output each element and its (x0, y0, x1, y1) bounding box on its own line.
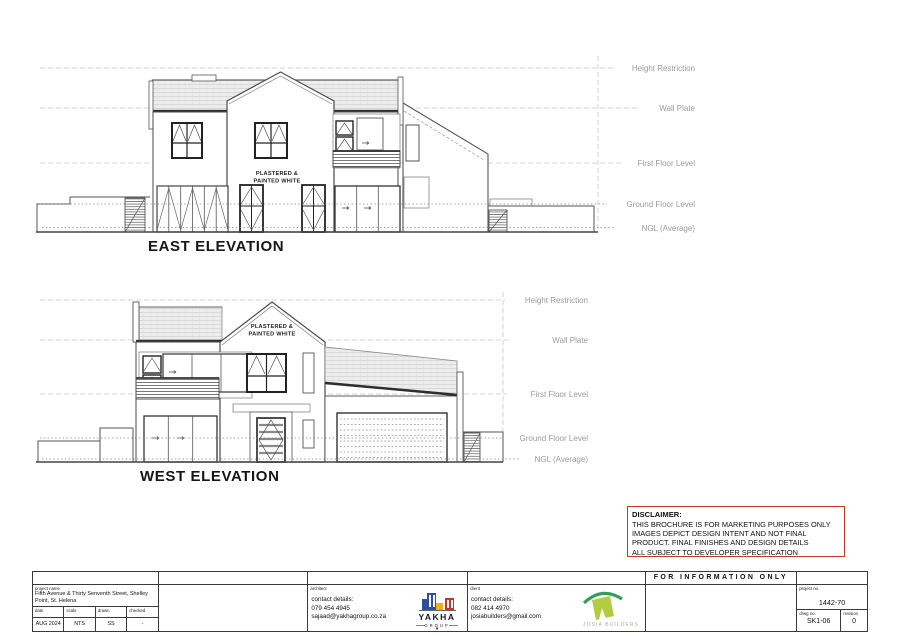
disclaimer-line: THIS BROCHURE IS FOR MARKETING PURPOSES … (632, 520, 840, 529)
level-label: Ground Floor Level (627, 200, 696, 209)
east-side-return (404, 177, 429, 208)
east-wall-note-line1: PLASTERED & (256, 171, 298, 177)
roof-vent (192, 75, 216, 81)
top-cell (797, 572, 867, 584)
drwg-no-value: SK1-06 (797, 616, 840, 625)
checked-label: checked (127, 607, 157, 618)
information-stamp-cell: FOR INFORMATION ONLY (646, 572, 798, 584)
empty-cell (646, 585, 798, 631)
project-no-label: project no. (797, 585, 867, 591)
top-cell (159, 572, 309, 584)
level-label: NGL (Average) (642, 224, 696, 233)
revision-cell: revision 0 (841, 610, 867, 631)
project-name: Fifth Avenue & Thirty Senventh Street, S… (33, 591, 158, 604)
west-narrow-window-lower (303, 420, 314, 448)
east-folding-doors (157, 186, 228, 232)
east-balcony (333, 114, 400, 168)
parapet-left (133, 302, 139, 342)
top-cell (308, 572, 468, 584)
revision-value: 0 (841, 616, 867, 625)
parapet-left (149, 81, 153, 129)
east-elevation-title: EAST ELEVATION (148, 238, 284, 255)
level-label: NGL (Average) (535, 455, 589, 464)
top-cell (33, 572, 159, 584)
east-french-door-right (302, 185, 325, 232)
east-narrow-window (406, 125, 419, 161)
date-column: date AUG 2024 (33, 607, 64, 631)
disclaimer-line: PRODUCT. FINAL FINISHES AND DESIGN DETAI… (632, 538, 840, 547)
date-value: AUG 2024 (33, 618, 63, 631)
level-label: First Floor Level (531, 390, 589, 399)
date-label: date (33, 607, 63, 618)
logo-building-yellow (436, 603, 443, 610)
level-label: Wall Plate (659, 104, 695, 113)
scale-value: NTS (64, 618, 94, 631)
top-cell (468, 572, 646, 584)
west-roof-left (133, 302, 222, 342)
garage-door (337, 413, 447, 462)
disclaimer-title: DISCLAIMER: (632, 510, 840, 520)
parapet-right (457, 372, 463, 462)
disclaimer-line: ALL SUBJECT TO DEVELOPER SPECIFICATION (632, 548, 840, 557)
checked-value: - (127, 618, 157, 631)
balcony-railing (136, 378, 219, 399)
drwg-no-cell: drwg no. SK1-06 (797, 610, 841, 631)
drawing-info-table: date AUG 2024 scale NTS drawn SS checked… (33, 606, 158, 631)
drawing-sheet: PLASTERED & PAINTED WHITE Height Restric… (0, 0, 900, 636)
east-elevation-drawing: PLASTERED & PAINTED WHITE Height Restric… (0, 0, 900, 270)
title-block: FOR INFORMATION ONLY project name Fifth … (32, 571, 868, 632)
west-window-gable (247, 354, 286, 392)
scale-column: scale NTS (64, 607, 95, 631)
west-left-boundary-wall (38, 428, 133, 462)
west-sliding-door (144, 416, 217, 462)
disclaimer-box: DISCLAIMER: THIS BROCHURE IS FOR MARKETI… (627, 506, 845, 557)
east-window-gable (255, 123, 287, 158)
west-narrow-window-upper (303, 353, 314, 393)
yakha-logo-subtext: GROUP (424, 623, 449, 628)
east-french-door-left (240, 185, 263, 232)
west-garage (325, 347, 463, 462)
west-elevation-title: WEST ELEVATION (140, 468, 280, 485)
title-block-main-row: project name Fifth Avenue & Thirty Senve… (33, 585, 867, 631)
project-name-cell: project name Fifth Avenue & Thirty Senve… (33, 585, 159, 631)
drawn-value: SS (96, 618, 126, 631)
west-right-boundary-wall (463, 432, 503, 462)
drawn-column: drawn SS (96, 607, 127, 631)
west-elevation-drawing: PLASTERED & PAINTED WHITE Height Restric… (0, 270, 900, 495)
yakha-logo-text: YAKHA (418, 612, 455, 622)
east-right-wing (403, 103, 594, 232)
level-label: Ground Floor Level (520, 434, 589, 443)
yakha-group-logo: YAKHA GROUP (410, 590, 464, 630)
drawn-label: drawn (96, 607, 126, 618)
numbers-cell: project no. 1442-70 drwg no. SK1-06 revi… (797, 585, 867, 631)
west-wall-note-line2: PAINTED WHITE (249, 332, 296, 338)
level-label: Wall Plate (552, 336, 588, 345)
west-level-labels: Height Restriction Wall Plate First Floo… (520, 296, 589, 464)
client-cell: client contact details: 082 414 4970 jos… (468, 585, 646, 631)
architect-cell: architect contact details: 079 454 4945 … (308, 585, 468, 631)
project-no-value: 1442-70 (797, 598, 867, 607)
for-information-only-stamp: FOR INFORMATION ONLY (646, 572, 797, 581)
east-wall-note-line2: PAINTED WHITE (254, 179, 301, 185)
level-label: Height Restriction (525, 296, 588, 305)
scale-label: scale (64, 607, 94, 618)
balcony-door (357, 118, 383, 150)
east-window-upper-left (172, 123, 202, 158)
level-label: Height Restriction (632, 64, 695, 73)
east-left-boundary-wall (37, 197, 150, 232)
west-balcony (136, 352, 252, 399)
drawing-number-band: drwg no. SK1-06 revision 0 (797, 609, 867, 631)
empty-cell (159, 585, 309, 631)
checked-column: checked - (127, 607, 157, 631)
title-block-top-row: FOR INFORMATION ONLY (33, 572, 867, 585)
level-label: First Floor Level (638, 159, 696, 168)
disclaimer-line: IMAGES DEPICT DESIGN INTENT AND NOT FINA… (632, 529, 840, 538)
garage-roof (325, 347, 457, 394)
west-wall-note-line1: PLASTERED & (251, 324, 293, 330)
east-sliding-door (335, 186, 400, 232)
east-level-labels: Height Restriction Wall Plate First Floo… (627, 64, 696, 233)
josia-builders-logo: JOSIA BUILDERS (566, 588, 640, 630)
josia-logo-text: JOSIA BUILDERS (583, 622, 639, 628)
balcony-railing (333, 151, 400, 167)
